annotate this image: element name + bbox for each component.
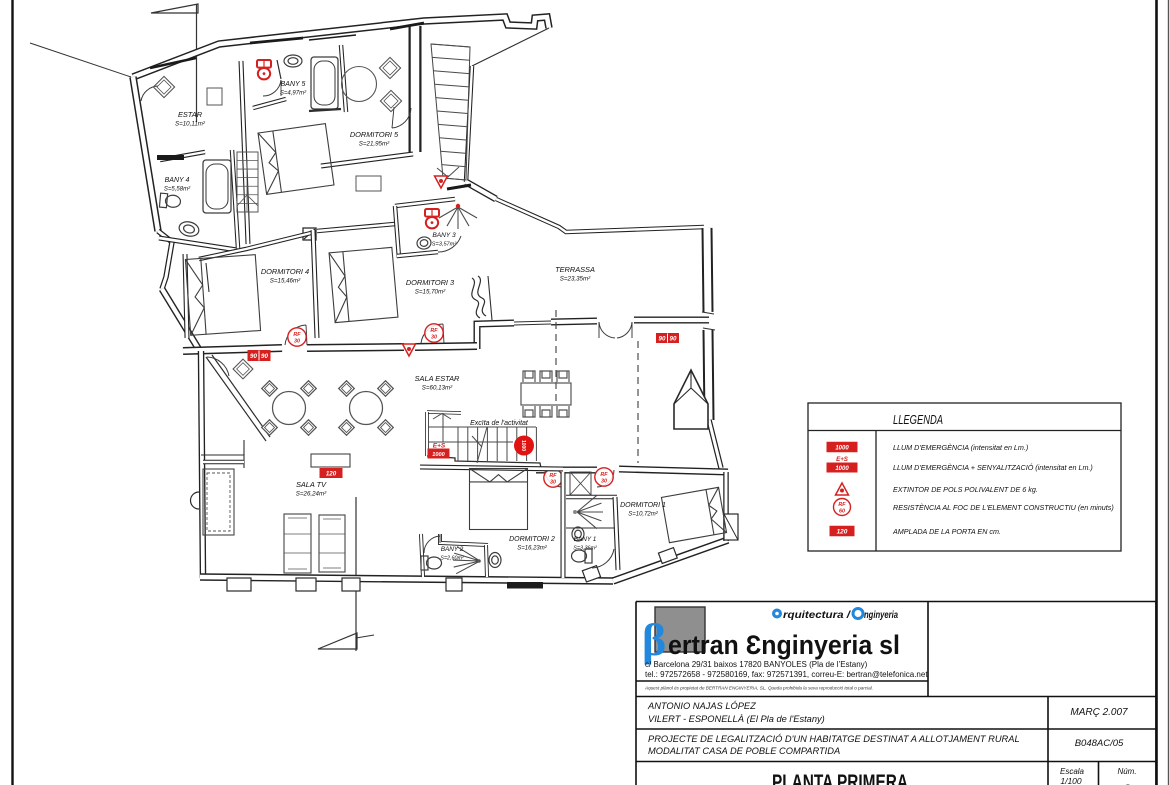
svg-text:Núm.: Núm.	[1117, 767, 1136, 776]
svg-text:RF: RF	[600, 472, 608, 478]
svg-text:c/ Barcelona 29/31 baixos 1782: c/ Barcelona 29/31 baixos 17820 BANYOLES…	[645, 660, 868, 669]
svg-text:DORMITORI 5: DORMITORI 5	[350, 130, 399, 139]
svg-text:2: 2	[1121, 781, 1132, 785]
svg-text:DORMITORI 1: DORMITORI 1	[620, 502, 666, 509]
svg-text:90: 90	[670, 335, 677, 342]
svg-text:120: 120	[326, 470, 337, 477]
svg-text:PLANTA PRIMERA: PLANTA PRIMERA	[772, 771, 908, 785]
svg-text:RESISTÈNCIA AL FOC DE L'ELEMEN: RESISTÈNCIA AL FOC DE L'ELEMENT CONSTRUC…	[893, 503, 1114, 512]
svg-text:rquitectura /: rquitectura /	[783, 610, 851, 621]
svg-text:DORMITORI 3: DORMITORI 3	[406, 278, 455, 287]
svg-text:S=2,60m²: S=2,60m²	[440, 556, 464, 562]
svg-text:TERRASSA: TERRASSA	[555, 265, 595, 274]
svg-text:120: 120	[837, 528, 848, 535]
svg-text:90: 90	[261, 353, 268, 360]
svg-text:Escala: Escala	[1060, 767, 1085, 776]
svg-text:S=21,95m²: S=21,95m²	[359, 141, 390, 148]
svg-text:LLEGENDA: LLEGENDA	[893, 412, 943, 427]
svg-text:MARÇ 2.007: MARÇ 2.007	[1070, 707, 1128, 718]
svg-text:VILERT - ESPONELLÀ (El Pla de: VILERT - ESPONELLÀ (El Pla de l'Estany)	[648, 714, 825, 724]
svg-text:S=3,57m²: S=3,57m²	[432, 242, 458, 248]
svg-text:E+S: E+S	[836, 456, 849, 463]
svg-text:LLUM D'EMERGÈNCIA (intensitat: LLUM D'EMERGÈNCIA (intensitat en Lm.)	[893, 443, 1028, 452]
svg-text:S=16,23m²: S=16,23m²	[517, 546, 548, 552]
svg-text:BANY 2: BANY 2	[441, 546, 464, 553]
svg-text:1000: 1000	[520, 440, 526, 451]
svg-text:nginyeria: nginyeria	[864, 610, 898, 621]
svg-text:ESTAR: ESTAR	[178, 110, 203, 119]
svg-text:tel.: 972572658 - 972580169, f: tel.: 972572658 - 972580169, fax: 972571…	[645, 670, 928, 679]
svg-text:B048AC/05: B048AC/05	[1075, 738, 1124, 749]
svg-text:30: 30	[550, 479, 556, 485]
svg-text:S=15,46m²: S=15,46m²	[270, 278, 301, 285]
svg-text:RF: RF	[293, 332, 301, 338]
svg-text:EXTINTOR DE POLS POLIVALENT DE: EXTINTOR DE POLS POLIVALENT DE 6 kg.	[893, 485, 1038, 494]
svg-text:BANY 1: BANY 1	[574, 536, 597, 543]
svg-text:90: 90	[659, 335, 666, 342]
svg-text:DORMITORI 4: DORMITORI 4	[261, 267, 309, 276]
svg-text:BANY 3: BANY 3	[432, 232, 456, 239]
svg-text:β: β	[642, 614, 666, 665]
svg-text:1/100: 1/100	[1060, 776, 1082, 785]
svg-text:90: 90	[250, 353, 257, 360]
svg-text:SALA TV: SALA TV	[296, 480, 327, 489]
svg-text:S=4,97m²: S=4,97m²	[280, 91, 307, 97]
svg-text:1000: 1000	[432, 452, 445, 458]
svg-text:60: 60	[839, 508, 845, 514]
svg-text:LLUM D'EMERGÈNCIA + SENYALITZA: LLUM D'EMERGÈNCIA + SENYALITZACIÓ (inten…	[893, 463, 1093, 472]
svg-text:30: 30	[294, 338, 300, 344]
svg-text:S=15,70m²: S=15,70m²	[415, 289, 446, 296]
svg-text:1000: 1000	[835, 466, 849, 472]
svg-text:S=26,24m²: S=26,24m²	[296, 491, 327, 498]
svg-text:ertran Ɛnginyeria sl: ertran Ɛnginyeria sl	[668, 630, 900, 660]
svg-text:30: 30	[601, 478, 607, 484]
svg-text:DORMITORI 2: DORMITORI 2	[509, 536, 555, 543]
svg-text:PROJECTE DE LEGALITZACIÓ D'UN: PROJECTE DE LEGALITZACIÓ D'UN HABITATGE …	[648, 734, 1020, 744]
svg-text:RF: RF	[549, 473, 557, 479]
svg-text:S=60,13m²: S=60,13m²	[422, 385, 453, 392]
svg-text:RF: RF	[838, 502, 846, 508]
svg-text:E+S: E+S	[433, 443, 446, 450]
svg-text:SALA ESTAR: SALA ESTAR	[415, 374, 460, 383]
svg-text:S=10,72m²: S=10,72m²	[628, 512, 659, 518]
svg-text:RF: RF	[430, 328, 438, 334]
svg-text:ANTONIO NAJAS LÓPEZ: ANTONIO NAJAS LÓPEZ	[647, 701, 756, 711]
svg-text:AMPLADA DE LA PORTA EN cm.: AMPLADA DE LA PORTA EN cm.	[892, 527, 1001, 536]
svg-text:BANY 4: BANY 4	[165, 177, 190, 184]
svg-text:S=3,36m²: S=3,36m²	[573, 546, 597, 552]
svg-text:S=10,11m²: S=10,11m²	[175, 121, 206, 128]
svg-text:S=23,35m²: S=23,35m²	[560, 276, 591, 283]
svg-text:1000: 1000	[835, 445, 849, 451]
svg-text:Excïta de l'activitat: Excïta de l'activitat	[470, 420, 529, 427]
svg-text:S=5,58m²: S=5,58m²	[164, 187, 191, 193]
svg-text:BANY 5: BANY 5	[281, 81, 306, 88]
svg-text:MODALITAT CASA DE POBLE COMPAR: MODALITAT CASA DE POBLE COMPARTIDA	[648, 746, 840, 756]
svg-text:Aquest plànol és propietat de: Aquest plànol és propietat de BERTRAN EN…	[644, 686, 873, 691]
svg-text:30: 30	[431, 334, 437, 340]
